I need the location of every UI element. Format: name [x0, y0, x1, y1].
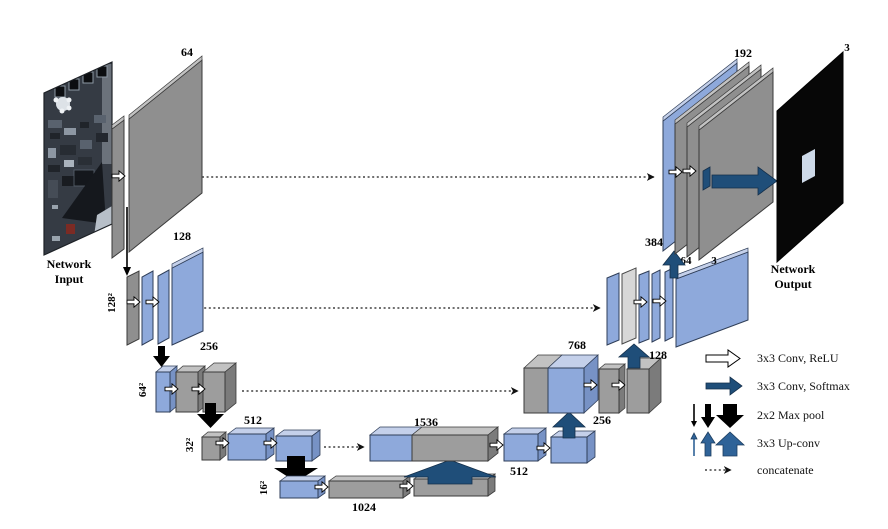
label-enc2-channels: 128 — [173, 229, 191, 243]
feature-box — [504, 434, 538, 461]
box-side — [225, 363, 236, 412]
encoder-level1-block: 64 — [112, 45, 202, 258]
maxpool-arrow-2 — [153, 346, 170, 367]
feature-panel — [639, 271, 649, 343]
feature-panel — [112, 120, 124, 258]
label-dec2-out-b: 3 — [711, 255, 717, 267]
box-side — [587, 431, 595, 463]
maxpool-medium-icon — [701, 404, 715, 428]
feature-panel — [142, 271, 153, 345]
input-caption-line1: Network — [47, 257, 92, 271]
feature-box — [156, 372, 170, 412]
feature-box — [176, 372, 198, 412]
label-enc4-channels: 512 — [244, 413, 262, 427]
feature-box — [627, 369, 649, 413]
feature-box — [280, 481, 318, 498]
feature-panel-silver — [622, 268, 636, 344]
legend-max-pool: 2x2 Max pool — [691, 404, 825, 428]
unet-architecture-diagram: Network Input 64 128 128² — [0, 0, 888, 529]
label-bottleneck-size: 16² — [258, 480, 270, 495]
circuit-board-texture — [44, 62, 112, 255]
output-feature-slab — [703, 167, 710, 190]
legend-up-conv: 3x3 Up-conv — [691, 432, 820, 456]
decoder-level1-block: 192 — [663, 46, 773, 260]
encoder-level3-block: 256 64² — [137, 339, 236, 412]
label-enc3-channels: 256 — [200, 339, 218, 353]
feature-panel — [607, 273, 619, 345]
network-input-caption: Network Input — [47, 257, 92, 286]
upconv-large-icon — [716, 432, 744, 456]
legend-conv-softmax: 3x3 Conv, Softmax — [706, 377, 850, 395]
legend-up-conv-label: 3x3 Up-conv — [757, 436, 820, 450]
legend-concatenate: concatenate — [705, 463, 814, 477]
legend-max-pool-label: 2x2 Max pool — [757, 408, 825, 422]
conv-softmax-arrow-icon — [706, 377, 742, 395]
feature-box — [599, 369, 619, 413]
network-output-caption: Network Output — [771, 262, 816, 291]
legend-conv-softmax-label: 3x3 Conv, Softmax — [757, 379, 850, 393]
label-dec4-out: 512 — [510, 464, 528, 478]
feature-box — [202, 437, 220, 460]
feature-box-concat-blue — [548, 368, 584, 413]
feature-panel — [652, 270, 660, 342]
feature-box — [228, 434, 266, 460]
upconv-thin-head — [691, 433, 697, 439]
network-input-image — [44, 62, 112, 255]
legend-concatenate-label: concatenate — [757, 463, 814, 477]
network-output-image: 3 — [777, 42, 850, 262]
feature-box-concat-gray — [524, 368, 548, 413]
label-dec4-concat: 1536 — [414, 415, 438, 429]
box-side — [312, 430, 320, 461]
label-dec2-concat: 384 — [645, 235, 663, 249]
feature-box-concat-blue — [370, 435, 412, 461]
input-caption-line2: Input — [55, 272, 84, 286]
label-enc3-size: 64² — [137, 382, 149, 397]
label-dec3-concat: 768 — [568, 338, 586, 352]
box-top — [329, 476, 410, 481]
label-enc4-size: 32² — [184, 437, 196, 452]
legend-conv-relu: 3x3 Conv, ReLU — [706, 350, 839, 367]
label-dec3-up: 128 — [649, 348, 667, 362]
feature-box — [329, 481, 403, 498]
maxpool-thin-head — [691, 421, 697, 427]
feature-panel — [665, 268, 673, 341]
maxpool-large-icon — [716, 404, 744, 428]
output-caption-line2: Output — [774, 277, 811, 291]
diagram-canvas: Network Input 64 128 128² — [0, 0, 888, 529]
legend-conv-relu-label: 3x3 Conv, ReLU — [757, 351, 839, 365]
label-enc1-channels: 64 — [181, 45, 193, 59]
feature-box-concat-gray — [412, 435, 488, 461]
output-caption-line1: Network — [771, 262, 816, 276]
feature-panel — [127, 271, 139, 345]
conv-relu-arrow-icon — [706, 350, 740, 367]
feature-panel — [158, 270, 169, 344]
upconv-medium-icon — [701, 432, 715, 456]
legend: 3x3 Conv, ReLU 3x3 Conv, Softmax 2x2 Max… — [691, 350, 850, 477]
label-dec4-up: 256 — [593, 413, 611, 427]
label-dec1-concat: 192 — [734, 46, 752, 60]
label-bottleneck-channels: 1024 — [352, 500, 376, 514]
label-output-channels: 3 — [844, 42, 850, 54]
box-top — [280, 476, 325, 481]
feature-box — [551, 437, 587, 463]
label-enc2-size: 128² — [106, 292, 118, 313]
